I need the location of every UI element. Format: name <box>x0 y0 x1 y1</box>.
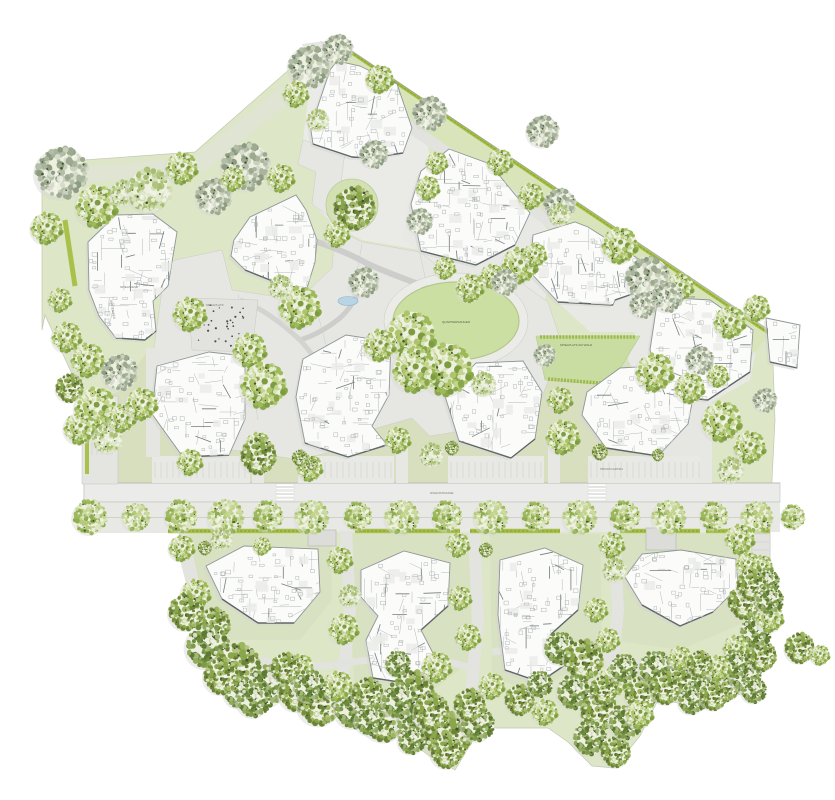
svg-text:BIOTOP: BIOTOP <box>684 295 695 299</box>
svg-text:HUGEL: HUGEL <box>343 203 354 207</box>
svg-text:QUARTIERSANGER: QUARTIERSANGER <box>442 320 471 324</box>
svg-text:WOHNSTRASSE: WOHNSTRASSE <box>430 491 454 495</box>
svg-text:SPIELPLATZ: SPIELPLATZ <box>206 303 224 307</box>
svg-text:PRIVATGARTEN: PRIVATGARTEN <box>600 467 623 471</box>
svg-text:SPIELWIESE: SPIELWIESE <box>120 285 138 289</box>
svg-text:SPIELPLATZ AM WALD: SPIELPLATZ AM WALD <box>560 343 593 347</box>
